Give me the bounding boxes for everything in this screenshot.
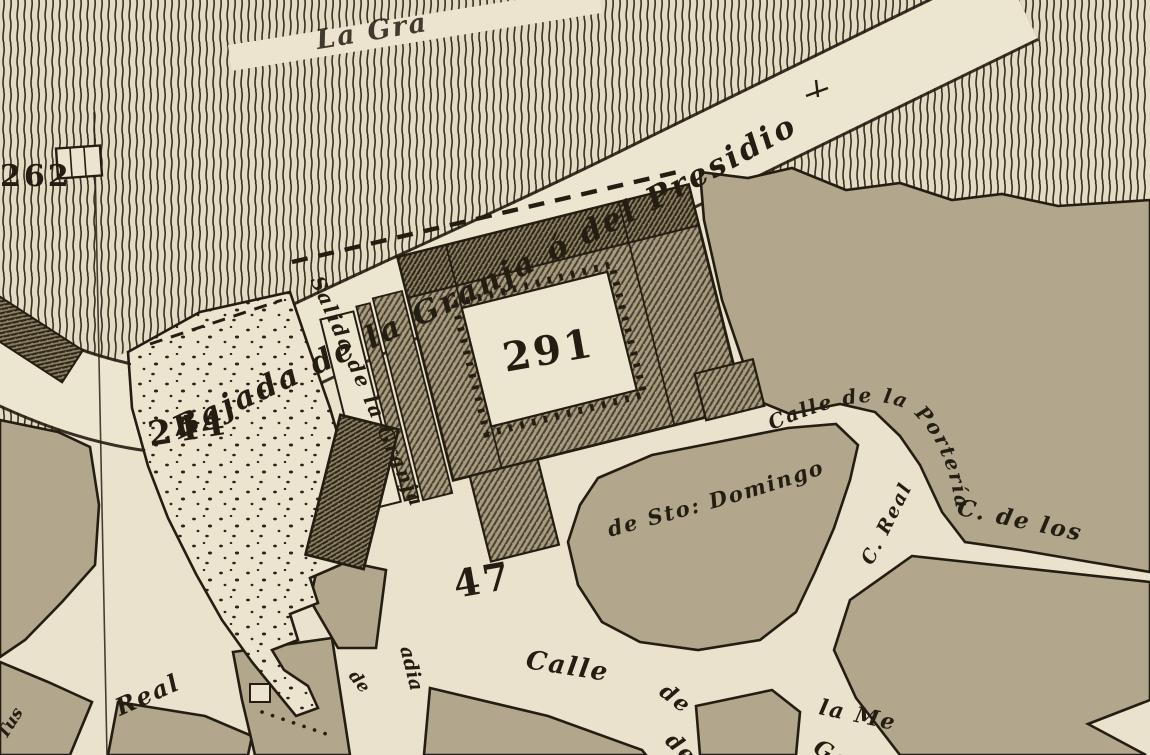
small-courtyard	[250, 684, 270, 702]
map-stage: La Gra	[0, 0, 1150, 755]
map-canvas: La Gra	[0, 0, 1150, 755]
number-262: 262	[0, 159, 72, 194]
